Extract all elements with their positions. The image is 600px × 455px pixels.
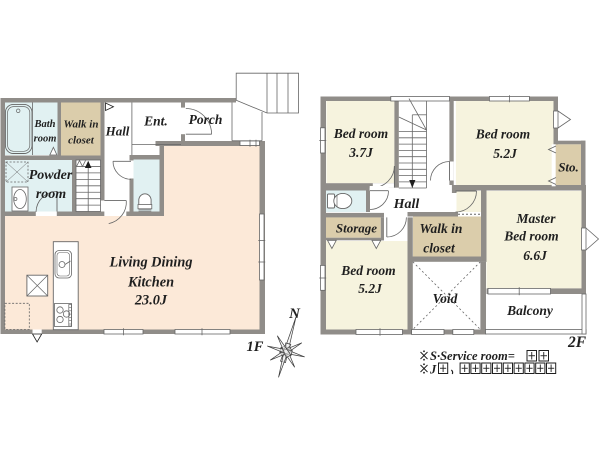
svg-text:Kitchen: Kitchen xyxy=(127,275,174,291)
svg-text:N: N xyxy=(288,306,301,322)
svg-text:Bed room: Bed room xyxy=(340,263,395,278)
svg-text:1F: 1F xyxy=(247,339,264,355)
svg-text:room: room xyxy=(34,134,57,145)
svg-text:Walk in: Walk in xyxy=(420,221,463,236)
svg-text:Porch: Porch xyxy=(189,112,223,127)
svg-text:6.6J: 6.6J xyxy=(523,248,548,263)
svg-text:Powder: Powder xyxy=(29,168,73,183)
svg-text:J: J xyxy=(429,363,437,377)
svg-text:Walk in: Walk in xyxy=(64,119,99,131)
svg-text:3.7J: 3.7J xyxy=(348,145,374,160)
svg-text:S·Service room=: S·Service room= xyxy=(430,349,515,363)
svg-text:Bed room: Bed room xyxy=(503,229,558,244)
svg-text:room: room xyxy=(36,187,66,202)
svg-text:5.2J: 5.2J xyxy=(493,146,518,161)
svg-text:Hall: Hall xyxy=(105,124,130,139)
svg-text:Balcony: Balcony xyxy=(506,303,554,318)
svg-text:5.2J: 5.2J xyxy=(358,281,383,296)
svg-text:closet: closet xyxy=(423,241,456,256)
svg-text:Ent.: Ent. xyxy=(143,114,168,129)
svg-text:Sto.: Sto. xyxy=(558,160,579,175)
svg-text:2F: 2F xyxy=(567,334,587,351)
svg-text:Bath: Bath xyxy=(33,119,55,130)
svg-text:Hall: Hall xyxy=(393,197,420,212)
svg-text:Storage: Storage xyxy=(336,221,377,236)
svg-text:closet: closet xyxy=(68,135,95,147)
svg-text:Bed room: Bed room xyxy=(333,126,388,141)
svg-text:Living Dining: Living Dining xyxy=(108,255,192,271)
svg-text:Void: Void xyxy=(433,291,458,306)
svg-text:Master: Master xyxy=(515,211,556,226)
svg-text:Bed room: Bed room xyxy=(475,127,530,142)
svg-text:23.0J: 23.0J xyxy=(134,293,168,309)
